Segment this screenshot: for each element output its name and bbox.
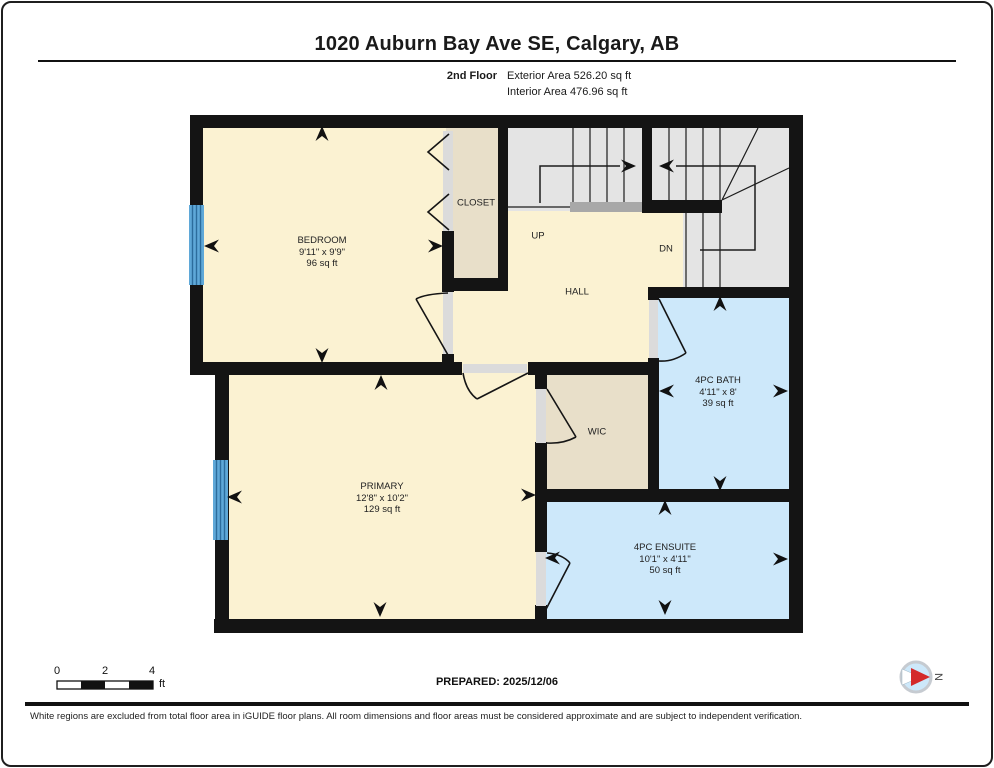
room-name: DN bbox=[659, 243, 673, 255]
wall-wic-bath-bottom bbox=[535, 489, 789, 502]
room-label-bedroom: BEDROOM 9'11" x 9'9" 96 sq ft bbox=[297, 235, 346, 270]
ensuite-door-opening bbox=[536, 552, 546, 606]
wall-exterior-top bbox=[190, 115, 803, 128]
wall-hall-bottom-right bbox=[528, 362, 655, 375]
wall-hall-bottom-left bbox=[190, 362, 462, 375]
primary-door-opening bbox=[463, 364, 527, 373]
wall-closet-right bbox=[498, 121, 508, 291]
room-area: 96 sq ft bbox=[297, 258, 346, 270]
wall-bath-left bbox=[648, 358, 659, 492]
footer-divider bbox=[25, 702, 969, 706]
wall-closet-bottom bbox=[442, 278, 508, 291]
closet-bifold-opening bbox=[443, 131, 453, 231]
wall-primary-right-top bbox=[535, 375, 547, 389]
wall-bath-top bbox=[648, 287, 789, 298]
room-area: 129 sq ft bbox=[356, 504, 408, 516]
room-area: 50 sq ft bbox=[634, 565, 696, 577]
room-name: BEDROOM bbox=[297, 235, 346, 247]
room-label-bath: 4PC BATH 4'11" x 8' 39 sq ft bbox=[695, 375, 741, 410]
room-name: UP bbox=[531, 230, 544, 242]
wall-exterior-bottom bbox=[214, 619, 803, 633]
wic-door-opening bbox=[536, 389, 546, 443]
room-name: 4PC ENSUITE bbox=[634, 542, 696, 554]
room-dims: 10'1" x 4'11" bbox=[634, 553, 696, 565]
bedroom-door-opening bbox=[443, 292, 453, 354]
wall-bath-left-top bbox=[648, 287, 659, 300]
room-name: HALL bbox=[565, 286, 589, 298]
room-label-primary: PRIMARY 12'8" x 10'2" 129 sq ft bbox=[356, 481, 408, 516]
room-name: 4PC BATH bbox=[695, 375, 741, 387]
room-dims: 4'11" x 8' bbox=[695, 386, 741, 398]
room-name: WIC bbox=[588, 426, 606, 438]
prepared-date-label: PREPARED: 2025/12/06 bbox=[0, 676, 994, 688]
disclaimer-text: White regions are excluded from total fl… bbox=[30, 711, 974, 722]
room-label-dn: DN bbox=[659, 243, 673, 255]
floor-plan-drawing: N bbox=[0, 0, 994, 768]
room-area: 39 sq ft bbox=[695, 398, 741, 410]
room-label-wic: WIC bbox=[588, 426, 606, 438]
room-dims: 12'8" x 10'2" bbox=[356, 492, 408, 504]
wall-stairs-dn-bottom bbox=[642, 200, 722, 213]
stairs-up-edge-bar bbox=[570, 202, 643, 212]
bath-door-opening bbox=[649, 300, 658, 358]
wall-stair-divider bbox=[642, 121, 652, 213]
room-label-up: UP bbox=[531, 230, 544, 242]
room-label-ensuite: 4PC ENSUITE 10'1" x 4'11" 50 sq ft bbox=[634, 542, 696, 577]
floorplan-page: 1020 Auburn Bay Ave SE, Calgary, AB 2nd … bbox=[0, 0, 994, 768]
room-name: CLOSET bbox=[457, 197, 495, 209]
room-dims: 9'11" x 9'9" bbox=[297, 246, 346, 258]
room-label-hall: HALL bbox=[565, 286, 589, 298]
wall-exterior-right bbox=[789, 115, 803, 633]
room-label-closet: CLOSET bbox=[457, 197, 495, 209]
room-name: PRIMARY bbox=[356, 481, 408, 493]
